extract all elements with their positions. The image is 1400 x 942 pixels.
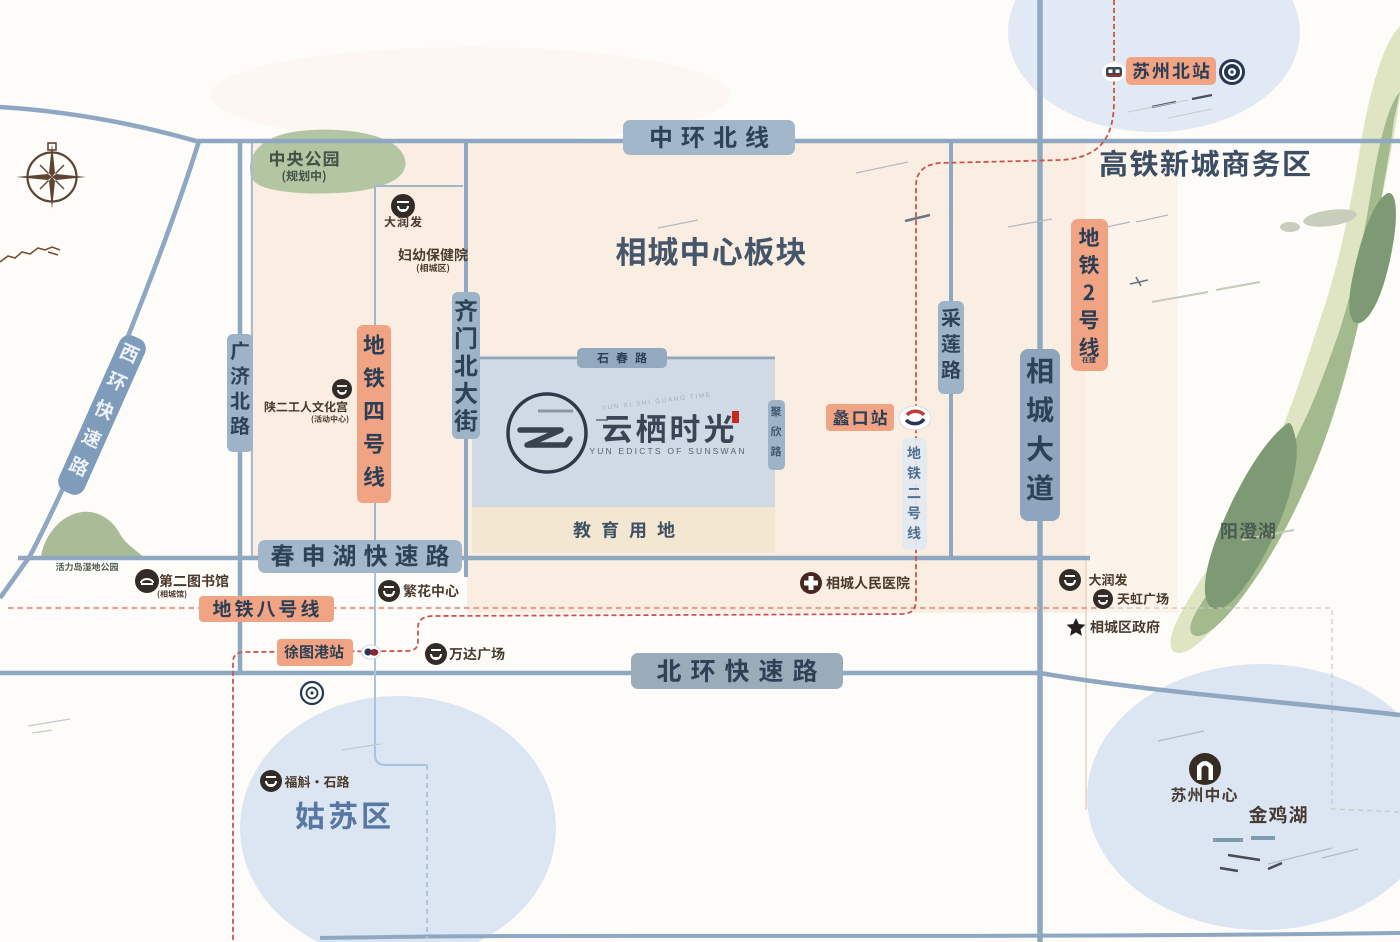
svg-text:YUN EDICTS OF SUNSWAN: YUN EDICTS OF SUNSWAN (589, 446, 746, 456)
